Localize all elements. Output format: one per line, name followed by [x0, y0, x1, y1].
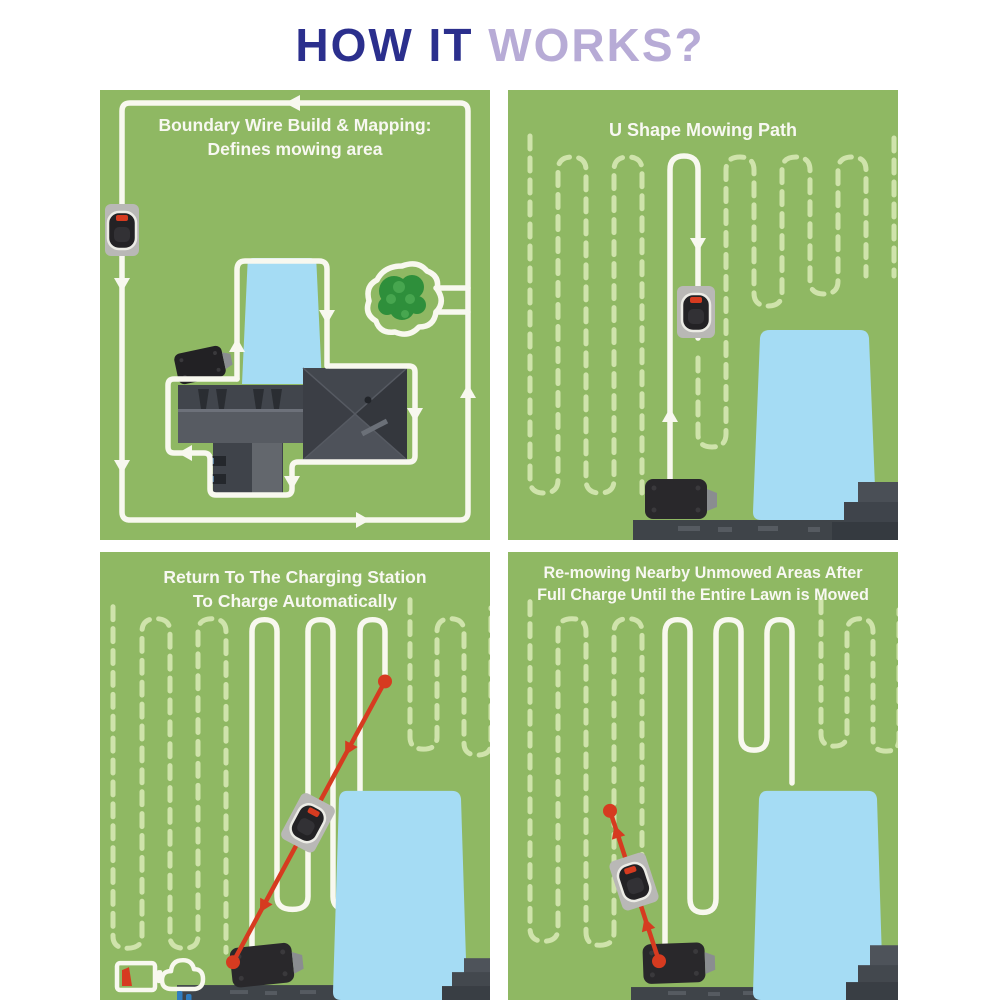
page-title: HOW IT WORKS?: [0, 18, 1000, 72]
panel-boundary-mapping: Boundary Wire Build & Mapping: Defines m…: [100, 90, 490, 540]
route-start-dot: [378, 674, 392, 688]
boundary-illustration: [100, 90, 490, 540]
bush: [378, 275, 426, 320]
route-end-dot: [226, 955, 240, 969]
swimming-pool: [753, 330, 876, 520]
page-title-primary: HOW IT: [295, 19, 473, 71]
panel-ushape-path: U Shape Mowing Path: [508, 90, 898, 540]
charging-station: [645, 479, 717, 519]
panel-remowing: Re-mowing Nearby Unmowed Areas After Ful…: [508, 552, 898, 1000]
ushape-illustration: [508, 90, 898, 540]
hip-roof: [303, 368, 407, 460]
swimming-pool: [242, 258, 322, 384]
route-start-dot: [652, 954, 666, 968]
panel-return-to-station: Return To The Charging Station To Charge…: [100, 552, 490, 1000]
return-illustration: [100, 552, 490, 1000]
remowing-illustration: [508, 552, 898, 1000]
page-title-secondary: WORKS?: [473, 19, 704, 71]
driveway: [252, 443, 282, 495]
infographic: HOW IT WORKS?: [0, 0, 1000, 1000]
robot-mower: [105, 204, 139, 256]
robot-mower: [677, 286, 715, 338]
swimming-pool: [333, 791, 467, 1000]
route-end-dot: [603, 804, 617, 818]
chimney: [365, 397, 372, 404]
